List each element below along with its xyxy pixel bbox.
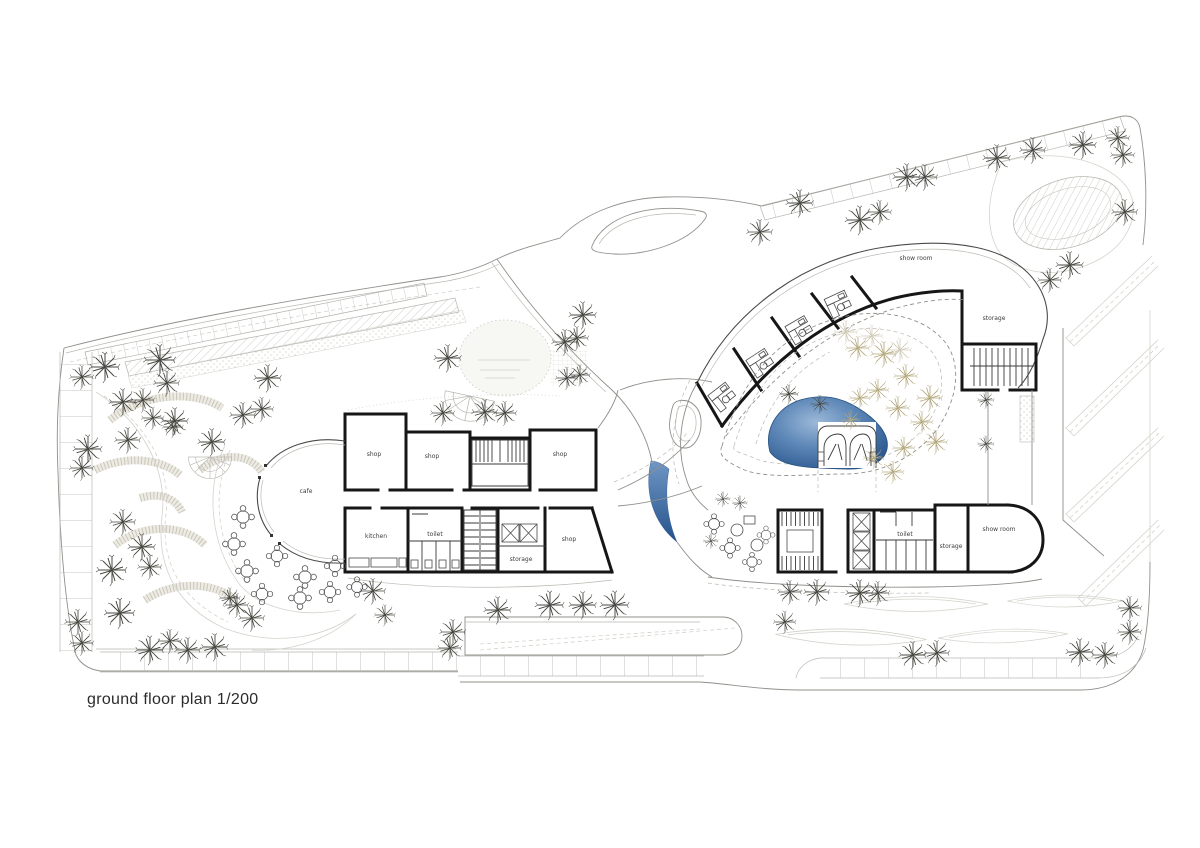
paving-bottom-left <box>100 652 458 672</box>
stair-upper-left-building <box>472 440 528 486</box>
stair-lower-left-building <box>464 510 496 570</box>
tree-icon <box>977 392 994 409</box>
tree-icon <box>434 345 462 373</box>
tree-icon <box>492 401 517 426</box>
tree-icon <box>885 396 910 421</box>
parking-strip <box>85 283 466 388</box>
elevator-icon <box>853 551 870 569</box>
cafe-glass-wall <box>257 440 345 563</box>
tree-icon <box>703 534 719 550</box>
pool-stair-island <box>818 422 876 468</box>
planter-circle <box>751 539 763 551</box>
zigzag-canopy <box>1066 256 1164 606</box>
lawn-leaf <box>938 627 1068 645</box>
tree-icon <box>114 427 140 453</box>
tree-icon <box>1110 143 1135 168</box>
room-label-storage-east: storage <box>983 315 1006 322</box>
room-label-cafe: cafe <box>300 488 313 495</box>
table-icon <box>236 560 259 583</box>
tree-icon <box>803 579 829 605</box>
tree-icon <box>1117 596 1142 621</box>
tree-icon <box>867 200 892 225</box>
kitchen-counter <box>349 558 406 567</box>
room-label-shop-4: shop <box>562 536 577 543</box>
crescent-pond <box>592 208 707 254</box>
bottom-right-lawn <box>775 595 1122 648</box>
tree-icon <box>910 411 933 434</box>
tree-icon <box>569 302 597 330</box>
tree-icon <box>484 597 512 625</box>
left-garden <box>95 391 495 650</box>
pool <box>768 397 887 492</box>
table-icon <box>232 506 255 529</box>
courtyard-terrace-tables <box>704 514 775 572</box>
room-label-storage-left: storage <box>510 556 533 563</box>
tree-icon <box>600 591 629 620</box>
tree-icon <box>535 591 564 620</box>
water-crescent <box>649 461 677 542</box>
table-icon <box>720 538 740 558</box>
tree-icon <box>893 364 918 389</box>
tree-icon <box>881 461 904 484</box>
tree-icon <box>238 605 264 631</box>
table-icon <box>742 552 761 571</box>
table-icon <box>294 566 317 589</box>
tree-icon <box>860 325 883 348</box>
table-icon <box>289 587 312 610</box>
trees-layer <box>64 126 1142 669</box>
tree-icon <box>198 429 226 457</box>
plaza-mound <box>459 320 551 396</box>
tree-icon <box>715 492 731 508</box>
tree-icon <box>374 605 396 627</box>
tree-icon <box>1056 252 1084 280</box>
tree-icon <box>870 341 896 367</box>
table-icon <box>757 526 775 544</box>
room-label-kitchen: kitchen <box>365 533 387 540</box>
room-label-shop-1: shop <box>367 451 382 458</box>
table-icon <box>704 514 724 534</box>
tree-icon <box>430 401 455 426</box>
elevator-icon <box>520 524 537 542</box>
paving-bottom-center <box>458 656 704 676</box>
toilet-stalls-right <box>876 512 933 570</box>
tree-icon <box>746 219 772 245</box>
tree-icon <box>229 402 255 428</box>
toilet-stalls-left <box>408 514 462 571</box>
right-building: show room storage toilet storage show ro… <box>673 243 1047 572</box>
top-right-garden <box>989 156 1133 273</box>
room-label-show-room-top: show room <box>900 255 933 262</box>
tree-icon <box>845 336 870 361</box>
central-plaza <box>348 208 1042 593</box>
tree-icon <box>916 385 942 411</box>
bench-icon <box>744 516 755 524</box>
tree-icon <box>141 407 164 430</box>
tree-icon <box>161 408 189 436</box>
tree-icon <box>254 365 282 393</box>
room-label-toilet-left: toilet <box>427 531 443 538</box>
stair-south-right-building <box>782 512 818 570</box>
lawn-leaf <box>775 626 927 647</box>
elevator-icon <box>853 532 870 550</box>
bottom-ramp <box>465 617 742 655</box>
table-icon <box>223 533 246 556</box>
tree-icon <box>845 206 874 235</box>
tree-icon <box>977 436 994 453</box>
table-icon <box>319 581 341 603</box>
drawing-title: ground floor plan 1/200 <box>87 691 258 708</box>
paving-left <box>60 352 92 652</box>
room-label-toilet-right: toilet <box>897 531 913 538</box>
tree-icon <box>923 430 948 455</box>
tree-icon <box>732 496 748 512</box>
tree-icon <box>104 598 135 629</box>
tree-icon <box>773 611 796 634</box>
garden-fan <box>440 391 495 426</box>
tree-icon <box>137 555 162 580</box>
tree-icon <box>96 555 127 586</box>
tree-icon <box>569 592 597 620</box>
table-icon <box>266 545 288 567</box>
tree-icon <box>249 397 274 422</box>
tree-icon <box>833 320 858 345</box>
elevator-icon <box>502 524 519 542</box>
planter-hatch <box>1020 396 1034 442</box>
left-building: shop shop shop cafe kitchen toilet stora… <box>257 414 612 572</box>
tree-icon <box>1117 620 1142 645</box>
room-label-storage-south: storage <box>940 543 963 550</box>
planter-circle <box>731 524 743 536</box>
room-label-show-room-south: show room <box>983 526 1016 533</box>
room-label-shop-2: shop <box>425 453 440 460</box>
paving-bottom-right <box>820 658 1098 678</box>
room-label-shop-3: shop <box>553 451 568 458</box>
floor-plan-canvas: shop shop shop cafe kitchen toilet stora… <box>0 0 1200 848</box>
elevator-icon <box>853 513 870 531</box>
lawn-leaf <box>1007 595 1122 607</box>
tree-icon <box>887 338 912 363</box>
